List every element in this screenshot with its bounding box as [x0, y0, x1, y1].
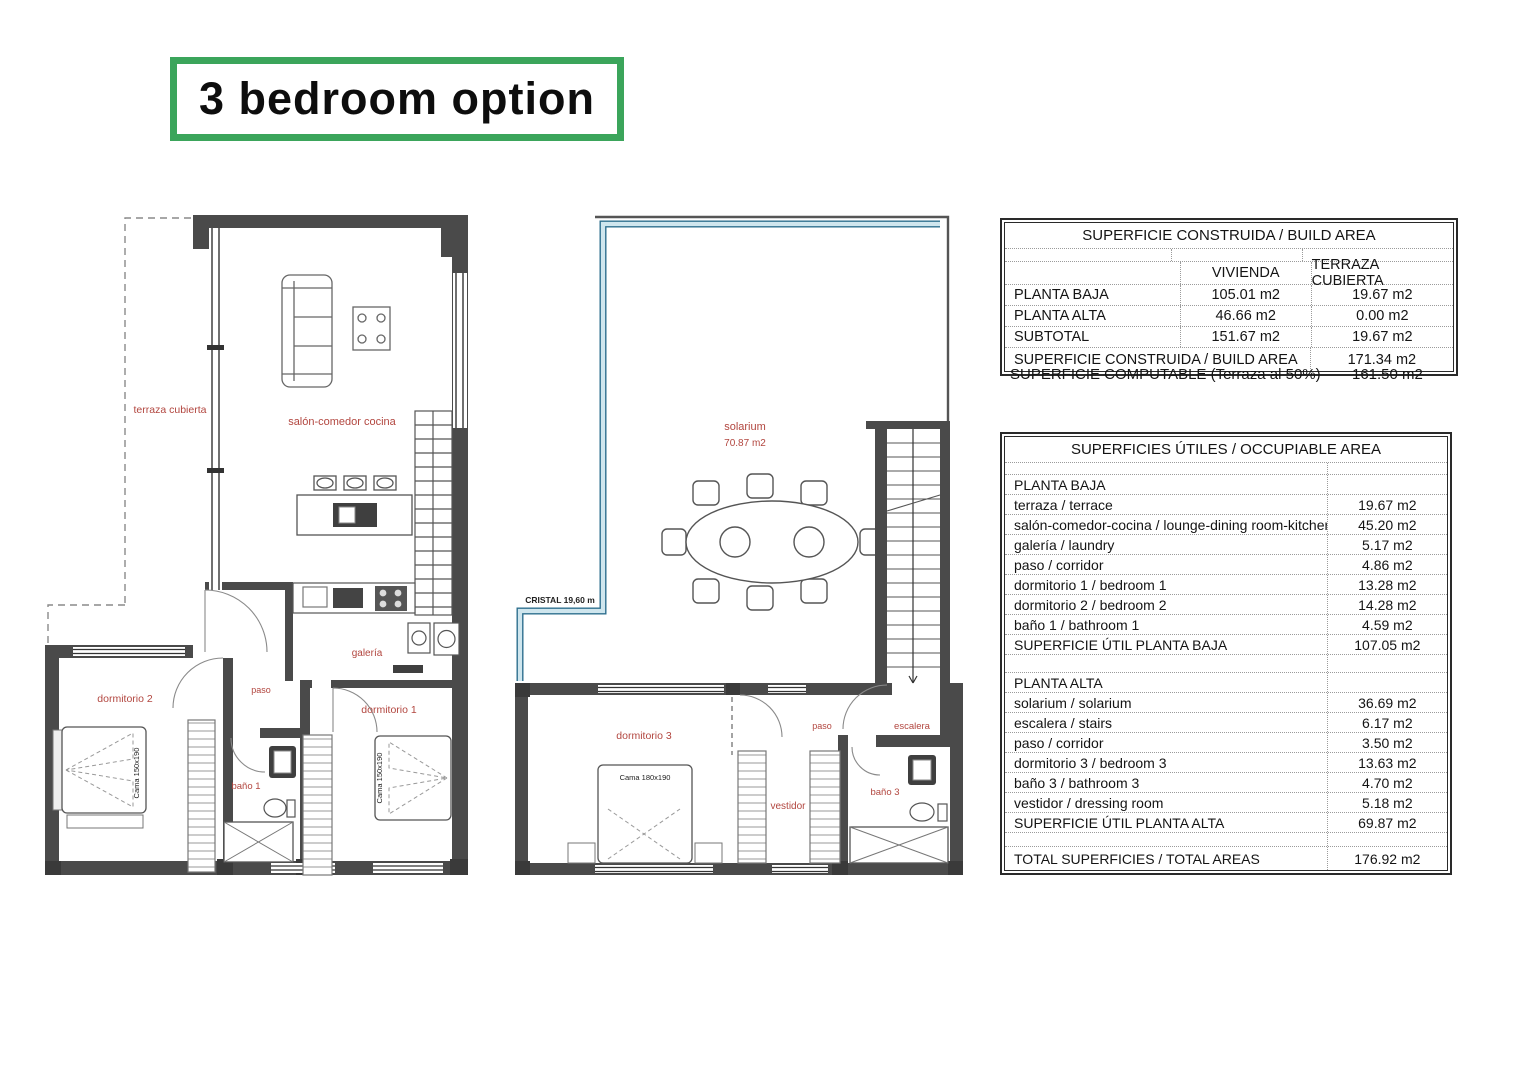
- dining-set: [662, 474, 884, 610]
- cell-value: 13.63 m2: [1327, 753, 1447, 772]
- cell-value: 69.87 m2: [1327, 813, 1447, 832]
- cell-label: dormitorio 3 / bedroom 3: [1005, 755, 1327, 771]
- floor-plan-sheet: 3 bedroom option: [0, 0, 1539, 1080]
- label-cama-dorm2: Cama 150x190: [132, 748, 141, 799]
- ground-floor-plan: terraza cubierta salón-comedor cocina ga…: [45, 215, 480, 880]
- bar-stools: [314, 476, 396, 490]
- cell-label: salón-comedor-cocina / lounge-dining roo…: [1005, 517, 1327, 533]
- table-row: solarium / solarium 36.69 m2: [1005, 693, 1447, 713]
- bed-dormitorio-1: [375, 736, 451, 820]
- table-row: salón-comedor-cocina / lounge-dining roo…: [1005, 515, 1447, 535]
- table-row: PLANTA ALTA 46.66 m2 0.00 m2: [1005, 306, 1453, 327]
- cell-label: PLANTA ALTA: [1005, 308, 1180, 324]
- toilet: [910, 803, 934, 821]
- upper-floor-plan: CRISTAL 19,60 m solarium 70.87 m2: [510, 215, 965, 880]
- label-galeria: galería: [352, 648, 383, 659]
- cell-value: 6.17 m2: [1327, 713, 1447, 732]
- build-area-table: SUPERFICIE CONSTRUIDA / BUILD AREA VIVIE…: [1000, 218, 1458, 376]
- section-header-row: PLANTA BAJA: [1005, 475, 1447, 495]
- terrace-dashed-outline: [48, 218, 215, 647]
- cell-value: 45.20 m2: [1327, 515, 1447, 534]
- cell-value: 13.28 m2: [1327, 575, 1447, 594]
- label-solarium: solarium: [724, 421, 766, 433]
- cell-terraza: 19.67 m2: [1311, 327, 1453, 347]
- label-cristal: CRISTAL 19,60 m: [525, 595, 595, 605]
- computable-value: 161.50 m2: [1317, 366, 1458, 383]
- cell-vivienda: 46.66 m2: [1180, 306, 1311, 326]
- label-dormitorio-2: dormitorio 2: [97, 693, 153, 705]
- stairs: [415, 411, 452, 615]
- cell-vivienda: 105.01 m2: [1180, 285, 1311, 305]
- wardrobe-vestidor-right: [810, 751, 840, 863]
- table-row: PLANTA BAJA 105.01 m2 19.67 m2: [1005, 285, 1453, 306]
- cell-label: paso / corridor: [1005, 735, 1327, 751]
- table-row: baño 1 / bathroom 1 4.59 m2: [1005, 615, 1447, 635]
- table-row: dormitorio 3 / bedroom 3 13.63 m2: [1005, 753, 1447, 773]
- cell-value: 36.69 m2: [1327, 693, 1447, 712]
- label-solarium-area: 70.87 m2: [724, 438, 766, 449]
- cell-value: 4.59 m2: [1327, 615, 1447, 634]
- label-bano-3: baño 3: [870, 787, 899, 798]
- build-area-table-title: SUPERFICIE CONSTRUIDA / BUILD AREA: [1082, 227, 1375, 244]
- label-cama-dorm3: Cama 180x190: [620, 773, 671, 782]
- table-row: terraza / terrace 19.67 m2: [1005, 495, 1447, 515]
- section-header: PLANTA ALTA: [1005, 675, 1327, 691]
- subtotal-row: SUPERFICIE ÚTIL PLANTA BAJA 107.05 m2: [1005, 635, 1447, 655]
- computable-row: SUPERFICIE COMPUTABLE (Terraza al 50%) 1…: [1000, 366, 1458, 383]
- toilet: [264, 799, 286, 817]
- sofa: [282, 275, 332, 387]
- bathroom-3-fixtures: [850, 755, 948, 863]
- cell-terraza: 0.00 m2: [1311, 306, 1453, 326]
- cell-value: 14.28 m2: [1327, 595, 1447, 614]
- cell-label: SUPERFICIE ÚTIL PLANTA ALTA: [1005, 815, 1327, 831]
- spacer-row: [1005, 833, 1447, 847]
- cell-vivienda: 151.67 m2: [1180, 327, 1311, 347]
- label-dormitorio-3: dormitorio 3: [616, 730, 672, 742]
- kitchen-island: [297, 476, 412, 535]
- cell-value: 19.67 m2: [1327, 495, 1447, 514]
- wardrobe-dormitorio-2: [188, 720, 215, 872]
- label-paso: paso: [251, 685, 271, 695]
- spacer-row: [1005, 463, 1447, 475]
- table-row: dormitorio 1 / bedroom 1 13.28 m2: [1005, 575, 1447, 595]
- label-cama-dorm1: Cama 150x190: [375, 753, 384, 804]
- cell-terraza: 19.67 m2: [1311, 285, 1453, 305]
- label-bano-1: baño 1: [231, 781, 260, 792]
- cell-value: 5.18 m2: [1327, 793, 1447, 812]
- cell-value: 5.17 m2: [1327, 535, 1447, 554]
- bathroom-1-fixtures: [224, 746, 296, 862]
- cell-value: 4.70 m2: [1327, 773, 1447, 792]
- page-title: 3 bedroom option: [199, 73, 595, 125]
- cell-label: dormitorio 1 / bedroom 1: [1005, 577, 1327, 593]
- label-dormitorio-1: dormitorio 1: [361, 704, 417, 716]
- cell-label: paso / corridor: [1005, 557, 1327, 573]
- table-title-row: SUPERFICIE CONSTRUIDA / BUILD AREA: [1005, 223, 1453, 249]
- table-row: escalera / stairs 6.17 m2: [1005, 713, 1447, 733]
- oven: [333, 588, 363, 608]
- subtotal-row: SUPERFICIE ÚTIL PLANTA ALTA 69.87 m2: [1005, 813, 1447, 833]
- table-row: paso / corridor 3.50 m2: [1005, 733, 1447, 753]
- cell-value: 4.86 m2: [1327, 555, 1447, 574]
- appliance-label-block: [393, 665, 423, 673]
- wardrobe-vestidor-left: [738, 751, 766, 863]
- computable-label: SUPERFICIE COMPUTABLE (Terraza al 50%): [1000, 366, 1317, 383]
- cell-label: SUBTOTAL: [1005, 329, 1180, 345]
- label-terraza-cubierta: terraza cubierta: [134, 404, 207, 416]
- table-row: galería / laundry 5.17 m2: [1005, 535, 1447, 555]
- cell-value: 3.50 m2: [1327, 733, 1447, 752]
- coffee-table: [353, 307, 390, 350]
- section-header-row: PLANTA ALTA: [1005, 673, 1447, 693]
- table-row: SUBTOTAL 151.67 m2 19.67 m2: [1005, 327, 1453, 348]
- occupiable-table-title: SUPERFICIES ÚTILES / OCCUPIABLE AREA: [1071, 441, 1381, 458]
- cell-label: baño 1 / bathroom 1: [1005, 617, 1327, 633]
- wardrobe-dormitorio-1: [303, 735, 332, 875]
- table-row: vestidor / dressing room 5.18 m2: [1005, 793, 1447, 813]
- cell-label: solarium / solarium: [1005, 695, 1327, 711]
- cell-value: 107.05 m2: [1327, 635, 1447, 654]
- table-title-row: SUPERFICIES ÚTILES / OCCUPIABLE AREA: [1005, 437, 1447, 463]
- table-row: dormitorio 2 / bedroom 2 14.28 m2: [1005, 595, 1447, 615]
- grand-total-row: TOTAL SUPERFICIES / TOTAL AREAS 176.92 m…: [1005, 847, 1447, 870]
- cell-label: PLANTA BAJA: [1005, 287, 1180, 303]
- cell-label: dormitorio 2 / bedroom 2: [1005, 597, 1327, 613]
- label-escalera: escalera: [894, 721, 931, 732]
- cell-label: galería / laundry: [1005, 537, 1327, 553]
- label-vestidor: vestidor: [770, 801, 806, 812]
- cell-value: 176.92 m2: [1327, 847, 1447, 870]
- laundry-appliances: [393, 623, 459, 673]
- table-row: paso / corridor 4.86 m2: [1005, 555, 1447, 575]
- column-header-row: VIVIENDA TERRAZA CUBIERTA: [1005, 262, 1453, 285]
- page-title-box: 3 bedroom option: [170, 57, 624, 141]
- occupiable-table: SUPERFICIES ÚTILES / OCCUPIABLE AREA PLA…: [1000, 432, 1452, 875]
- label-salon-comedor-cocina: salón-comedor cocina: [288, 416, 396, 428]
- kitchen-counter: [293, 583, 415, 613]
- col-header-terraza: TERRAZA CUBIERTA: [1311, 262, 1453, 284]
- col-header-vivienda: VIVIENDA: [1180, 262, 1311, 284]
- cell-label: TOTAL SUPERFICIES / TOTAL AREAS: [1005, 851, 1327, 867]
- cooktop: [375, 586, 407, 611]
- spacer-row: [1005, 655, 1447, 673]
- label-paso-upper: paso: [812, 721, 832, 731]
- cell-label: terraza / terrace: [1005, 497, 1327, 513]
- cell-label: baño 3 / bathroom 3: [1005, 775, 1327, 791]
- cell-label: vestidor / dressing room: [1005, 795, 1327, 811]
- section-header: PLANTA BAJA: [1005, 477, 1327, 493]
- stair-shaft: [866, 421, 950, 690]
- cell-label: escalera / stairs: [1005, 715, 1327, 731]
- cell-label: SUPERFICIE ÚTIL PLANTA BAJA: [1005, 637, 1327, 653]
- table-row: baño 3 / bathroom 3 4.70 m2: [1005, 773, 1447, 793]
